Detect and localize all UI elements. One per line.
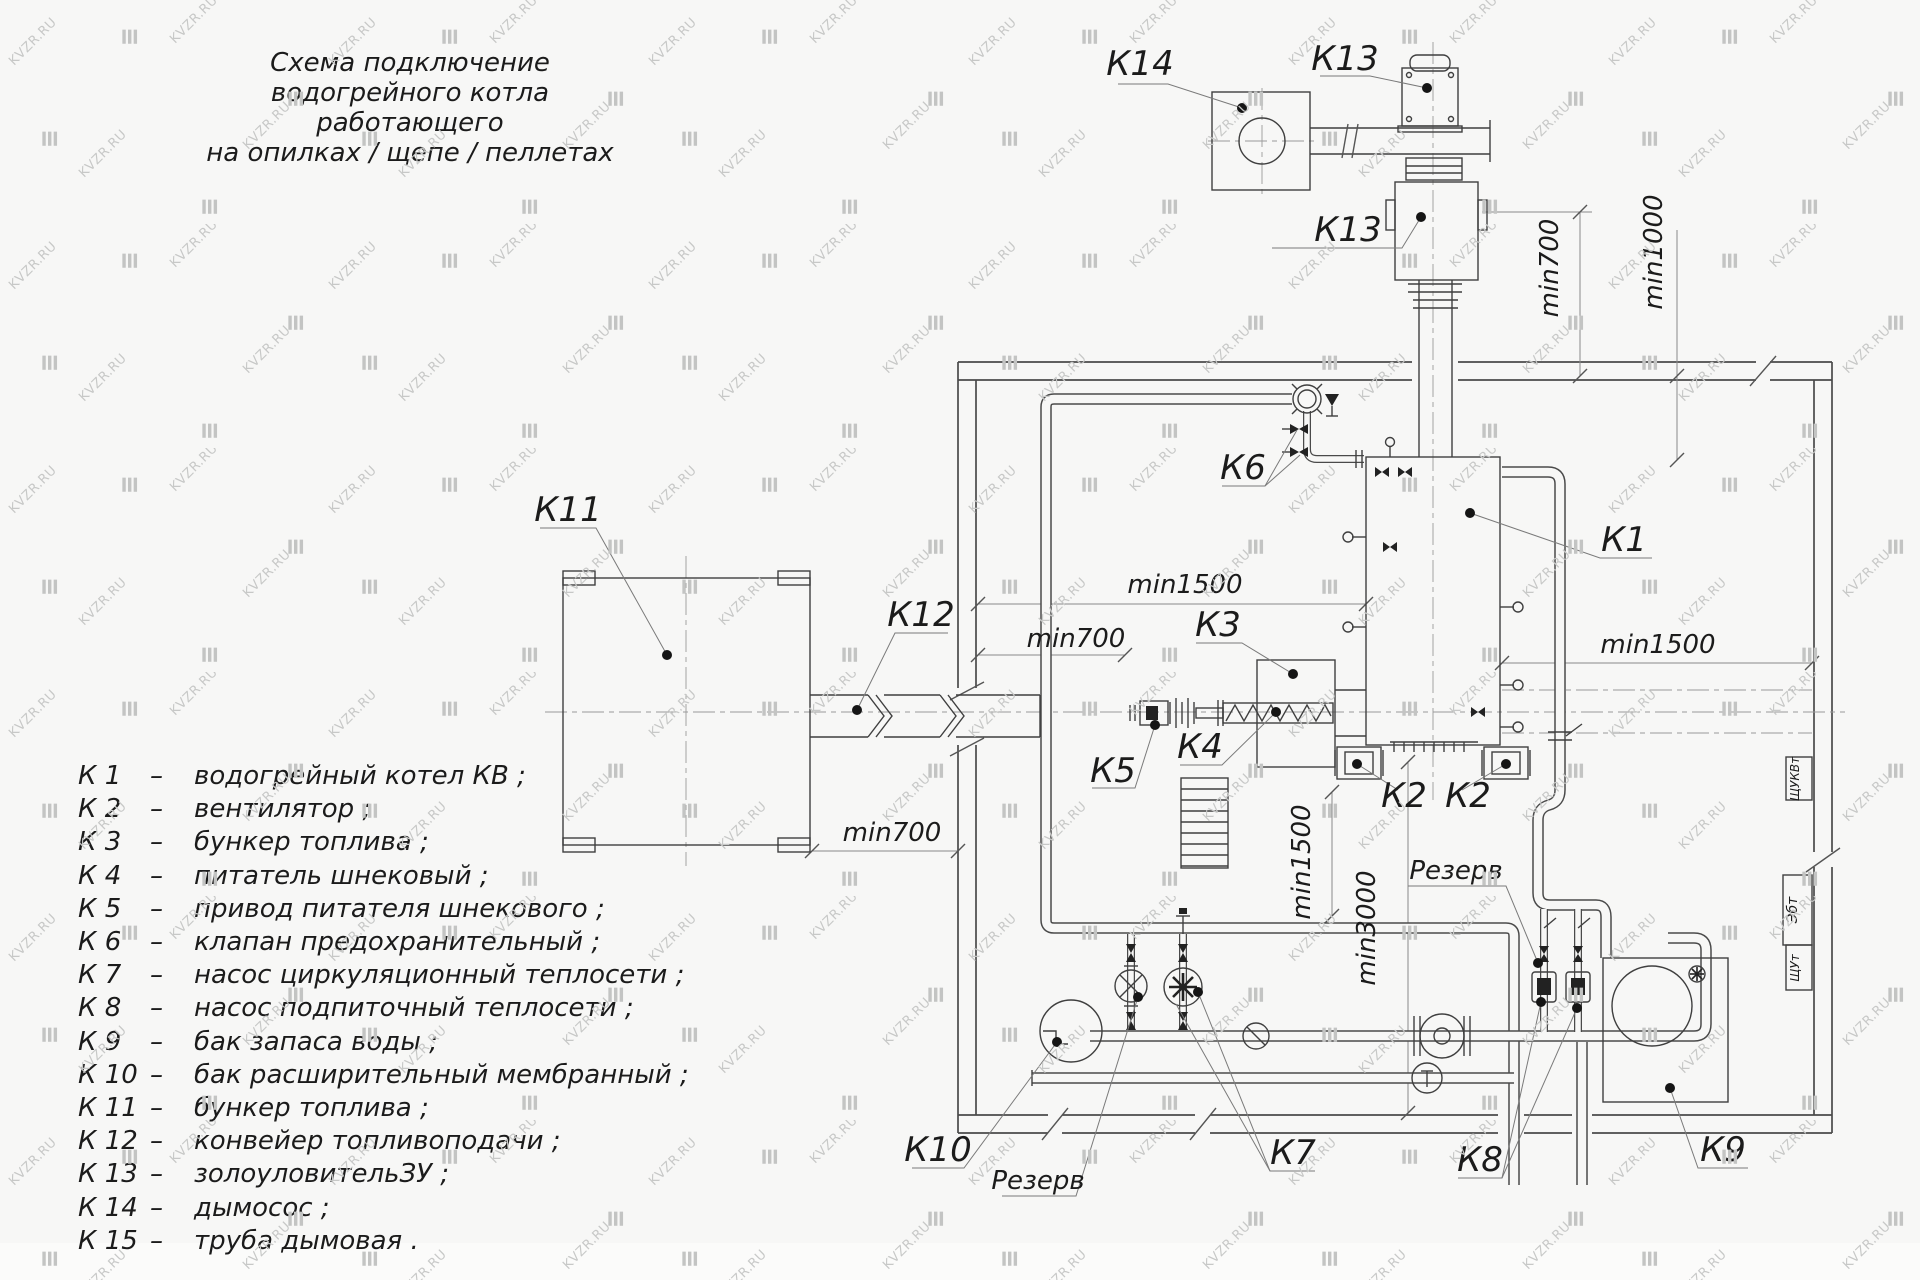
label-cabinet-shukvt: ЩУКВт	[1788, 756, 1802, 801]
label-k11: К11	[534, 490, 601, 530]
label-dim-1500-mid: min1500	[1127, 570, 1242, 600]
feeder-drive-k5	[1130, 698, 1223, 728]
label-k10: К10	[904, 1130, 971, 1170]
legend-name: бункер топлива ;	[194, 826, 429, 859]
ash-catcher-motor-k13	[1398, 55, 1462, 132]
label-cabinet-ebt: Эбт	[1785, 896, 1801, 924]
diagram-labels: К14К13К13К1К6К11К12К3К4К5К2К2К7К8К9К10Ре…	[534, 39, 1802, 1196]
label-k7: К7	[1270, 1133, 1316, 1173]
legend-separator: –	[150, 826, 194, 859]
label-k1: К1	[1601, 520, 1647, 560]
legend-name: труба дымовая .	[194, 1225, 419, 1258]
label-dim-3000-vert: min3000	[1352, 870, 1382, 985]
legend-item-5: К 5–привод питателя шнекового ;	[78, 893, 689, 926]
boiler-valves	[1375, 467, 1485, 717]
legend-name: привод питателя шнекового ;	[194, 893, 605, 926]
chimney-k15	[1413, 280, 1458, 457]
legend-separator: –	[150, 992, 194, 1025]
ash-catcher-k13	[1386, 158, 1487, 292]
legend-key: К 6	[78, 926, 150, 959]
legend-key: К 5	[78, 893, 150, 926]
legend-name: питатель шнековый ;	[194, 860, 489, 893]
label-k2-right: К2	[1445, 776, 1491, 816]
legend-separator: –	[150, 1158, 194, 1191]
legend-separator: –	[150, 1059, 194, 1092]
legend-item-15: К 15–труба дымовая .	[78, 1225, 689, 1258]
legend-item-12: К 12–конвейер топливоподачи ;	[78, 1125, 689, 1158]
legend-name: бак расширительный мембранный ;	[194, 1059, 689, 1092]
label-k8: К8	[1457, 1140, 1503, 1180]
legend-key: К 2	[78, 793, 150, 826]
label-k9: К9	[1700, 1130, 1746, 1170]
legend-separator: –	[150, 860, 194, 893]
legend-key: К 14	[78, 1192, 150, 1225]
label-dim-700-bunker: min700	[843, 818, 942, 848]
legend-item-9: К 9–бак запаса воды ;	[78, 1026, 689, 1059]
conveyor-k12	[810, 695, 1040, 737]
label-k4: К4	[1177, 727, 1223, 767]
legend-name: водогрейный котел КВ ;	[194, 760, 526, 793]
leader-lines	[540, 76, 1748, 1196]
legend-item-10: К 10–бак расширительный мембранный ;	[78, 1059, 689, 1092]
legend-separator: –	[150, 793, 194, 826]
legend-key: К 4	[78, 860, 150, 893]
ladder	[1181, 778, 1228, 868]
label-cabinet-shut: ЩУт	[1788, 953, 1802, 981]
legend-name: золоуловительЗУ ;	[194, 1158, 449, 1191]
legend-key: К 10	[78, 1059, 150, 1092]
label-dim-1500-right: min1500	[1600, 630, 1715, 660]
label-k14: К14	[1106, 44, 1173, 84]
legend-name: бак запаса воды ;	[194, 1026, 438, 1059]
legend-key: К 1	[78, 760, 150, 793]
label-dim-700-mid: min700	[1027, 624, 1126, 654]
label-k6: К6	[1220, 448, 1266, 488]
label-k3: К3	[1195, 605, 1241, 645]
label-dim-700-top: min700	[1535, 219, 1565, 318]
boiler-k1	[1343, 438, 1523, 753]
legend-item-14: К 14–дымосос ;	[78, 1192, 689, 1225]
legend-separator: –	[150, 893, 194, 926]
drawing-canvas: К14К13К13К1К6К11К12К3К4К5К2К2К7К8К9К10Ре…	[0, 0, 1920, 1280]
legend-name: вентилятор ;	[194, 793, 371, 826]
legend-item-3: К 3–бункер топлива ;	[78, 826, 689, 859]
dimension-lines	[805, 205, 1819, 1120]
legend-key: К 8	[78, 992, 150, 1025]
legend-item-8: К 8–насос подпиточный теплосети ;	[78, 992, 689, 1025]
legend-list: К 1–водогрейный котел КВ ;К 2–вентилятор…	[78, 760, 689, 1258]
legend-separator: –	[150, 926, 194, 959]
legend-name: клапан предохранительный ;	[194, 926, 600, 959]
legend-key: К 12	[78, 1125, 150, 1158]
title-line-3: на опилках / щепе / пеллетах	[175, 138, 645, 168]
legend-key: К 3	[78, 826, 150, 859]
boiler-grate	[1390, 742, 1478, 752]
label-dim-1000-top: min1000	[1639, 194, 1669, 309]
legend-name: насос циркуляционный теплосети ;	[194, 959, 684, 992]
label-rezerv-bottom: Резерв	[991, 1166, 1084, 1196]
legend-key: К 13	[78, 1158, 150, 1191]
legend-key: К 7	[78, 959, 150, 992]
label-k5: К5	[1090, 751, 1136, 791]
legend-separator: –	[150, 1225, 194, 1258]
label-k12: К12	[887, 595, 954, 635]
legend-name: насос подпиточный теплосети ;	[194, 992, 634, 1025]
label-rezerv-top: Резерв	[1409, 856, 1502, 886]
legend-key: К 9	[78, 1026, 150, 1059]
legend-separator: –	[150, 1092, 194, 1125]
legend-separator: –	[150, 1026, 194, 1059]
title-line-2: водогрейного котла работающего	[175, 78, 645, 138]
legend-key: К 11	[78, 1092, 150, 1125]
label-k13-body: К13	[1314, 210, 1381, 250]
legend-item-4: К 4–питатель шнековый ;	[78, 860, 689, 893]
label-k2-left: К2	[1381, 776, 1427, 816]
legend-separator: –	[150, 1125, 194, 1158]
legend-item-6: К 6–клапан предохранительный ;	[78, 926, 689, 959]
legend-item-2: К 2–вентилятор ;	[78, 793, 689, 826]
piping	[1032, 399, 1706, 1185]
label-dim-1500-vert: min1500	[1287, 804, 1317, 919]
legend-item-13: К 13–золоуловительЗУ ;	[78, 1158, 689, 1191]
drawing-title: Схема подключение водогрейного котла раб…	[175, 48, 645, 168]
legend-item-11: К 11–бункер топлива ;	[78, 1092, 689, 1125]
legend-separator: –	[150, 760, 194, 793]
legend-separator: –	[150, 959, 194, 992]
legend-separator: –	[150, 1192, 194, 1225]
legend-name: дымосос ;	[194, 1192, 330, 1225]
legend-key: К 15	[78, 1225, 150, 1258]
legend-item-1: К 1–водогрейный котел КВ ;	[78, 760, 689, 793]
title-line-1: Схема подключение	[175, 48, 645, 78]
legend-name: конвейер топливоподачи ;	[194, 1125, 561, 1158]
legend-item-7: К 7–насос циркуляционный теплосети ;	[78, 959, 689, 992]
legend-name: бункер топлива ;	[194, 1092, 429, 1125]
label-k13-top: К13	[1311, 39, 1378, 79]
